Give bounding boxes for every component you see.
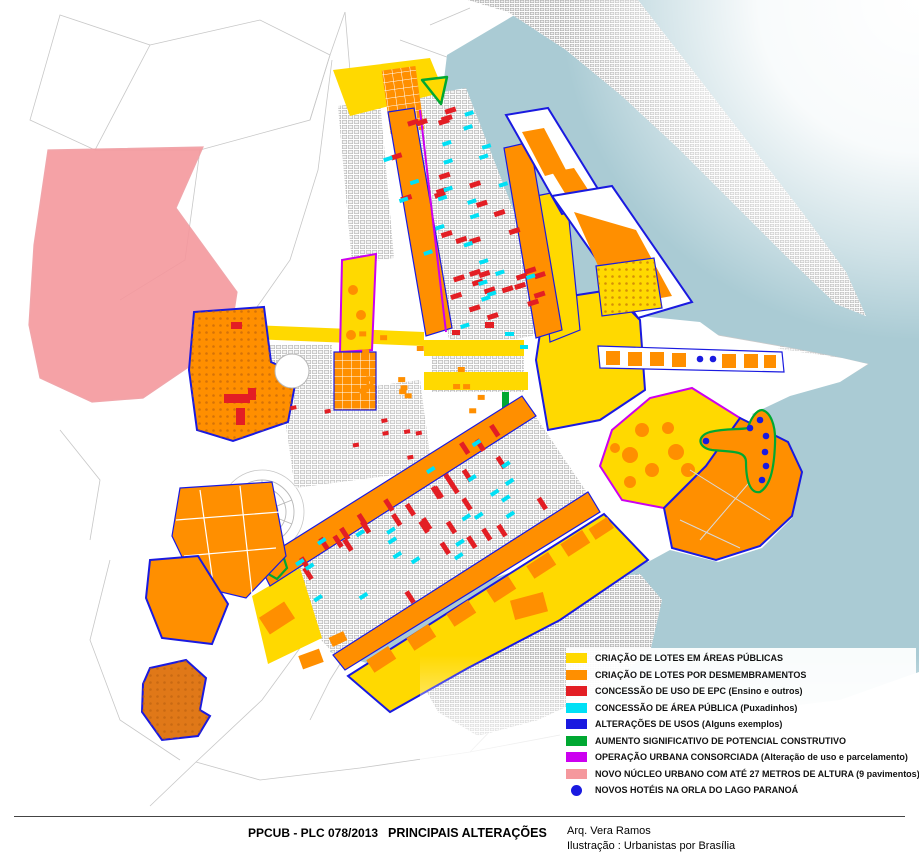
legend-item-concessao-uso-epc: CONCESSÃO DE USO DE EPC (Ensino e outros… (566, 683, 916, 700)
legend-item-alteracoes-usos: ALTERAÇÕES DE USOS (Alguns exemplos) (566, 716, 916, 733)
footer-author: Arq. Vera Ramos (567, 824, 735, 839)
footer-document-ref: PPCUB - PLC 078/2013 (248, 826, 378, 840)
new-lot (453, 384, 460, 389)
new-hotel-dot (757, 417, 764, 424)
legend-item-aumento-potencial: AUMENTO SIGNIFICATIVO DE POTENCIAL CONST… (566, 733, 916, 750)
new-lot (405, 393, 412, 398)
legend: CRIAÇÃO DE LOTES EM ÁREAS PÚBLICASCRIAÇÃ… (566, 648, 916, 803)
new-lot (366, 376, 373, 381)
new-hotel-dot (762, 449, 769, 456)
legend-item-novo-nucleo-urbano: NOVO NÚCLEO URBANO COM ATÉ 27 METROS DE … (566, 766, 916, 783)
new-hotel-dot (763, 433, 770, 440)
legend-label: ALTERAÇÕES DE USOS (Alguns exemplos) (595, 719, 782, 729)
new-lot (360, 389, 367, 394)
legend-item-operacao-urbana: OPERAÇÃO URBANA CONSORCIADA (Alteração d… (566, 749, 916, 766)
legend-color-swatch (566, 736, 587, 746)
consortium-sector-west (340, 254, 376, 352)
legend-item-lotes-desmembramentos: CRIAÇÃO DE LOTES POR DESMEMBRAMENTOS (566, 667, 916, 684)
legend-color-swatch (566, 719, 587, 729)
new-lot (362, 349, 369, 354)
new-lot (478, 395, 485, 400)
legend-label: CRIAÇÃO DE LOTES POR DESMEMBRAMENTOS (595, 670, 806, 680)
new-hotel-dot (703, 438, 710, 445)
legend-label: CONCESSÃO DE USO DE EPC (Ensino e outros… (595, 686, 803, 696)
legend-color-swatch (566, 752, 587, 762)
new-lot (398, 377, 405, 382)
legend-color-swatch (566, 653, 587, 663)
legend-color-swatch (566, 703, 587, 713)
new-lot (401, 385, 408, 390)
footer-divider (14, 816, 905, 817)
new-lot (469, 408, 476, 413)
new-lot (359, 331, 366, 336)
footer-map-title: PRINCIPAIS ALTERAÇÕES (388, 826, 547, 840)
new-hotel-dot (710, 356, 717, 363)
new-lot (458, 367, 465, 372)
legend-color-swatch (566, 769, 587, 779)
footer-illustration-credit: Ilustração : Urbanistas por Brasília (567, 839, 735, 854)
new-lot (380, 335, 387, 340)
legend-label: CONCESSÃO DE ÁREA PÚBLICA (Puxadinhos) (595, 703, 797, 713)
legend-item-lotes-areas-publicas: CRIAÇÃO DE LOTES EM ÁREAS PÚBLICAS (566, 650, 916, 667)
new-hotel-dot (759, 477, 766, 484)
new-hotel-dot (747, 425, 754, 432)
legend-item-novos-hoteis: NOVOS HOTÉIS NA ORLA DO LAGO PARANOÁ (566, 782, 916, 799)
legend-color-swatch (566, 670, 587, 680)
new-lot (367, 384, 374, 389)
new-lot (463, 384, 470, 389)
new-hotel-dot (763, 463, 770, 470)
new-lot (417, 346, 424, 351)
legend-label: CRIAÇÃO DE LOTES EM ÁREAS PÚBLICAS (595, 653, 783, 663)
legend-label: NOVOS HOTÉIS NA ORLA DO LAGO PARANOÁ (595, 785, 798, 795)
new-hotel-dot (697, 356, 704, 363)
legend-dot-swatch (571, 785, 582, 796)
footer: PPCUB - PLC 078/2013 PRINCIPAIS ALTERAÇÕ… (0, 812, 919, 868)
footer-credits: Arq. Vera Ramos Ilustração : Urbanistas … (567, 824, 735, 854)
legend-color-swatch (566, 686, 587, 696)
legend-item-concessao-area-publica: CONCESSÃO DE ÁREA PÚBLICA (Puxadinhos) (566, 700, 916, 717)
legend-label: AUMENTO SIGNIFICATIVO DE POTENCIAL CONST… (595, 736, 846, 746)
legend-label: OPERAÇÃO URBANA CONSORCIADA (Alteração d… (595, 752, 908, 762)
ppcub-map-page: { "legend": { "items": [ {"id":"lotes-ar… (0, 0, 919, 868)
legend-label: NOVO NÚCLEO URBANO COM ATÉ 27 METROS DE … (595, 769, 919, 779)
